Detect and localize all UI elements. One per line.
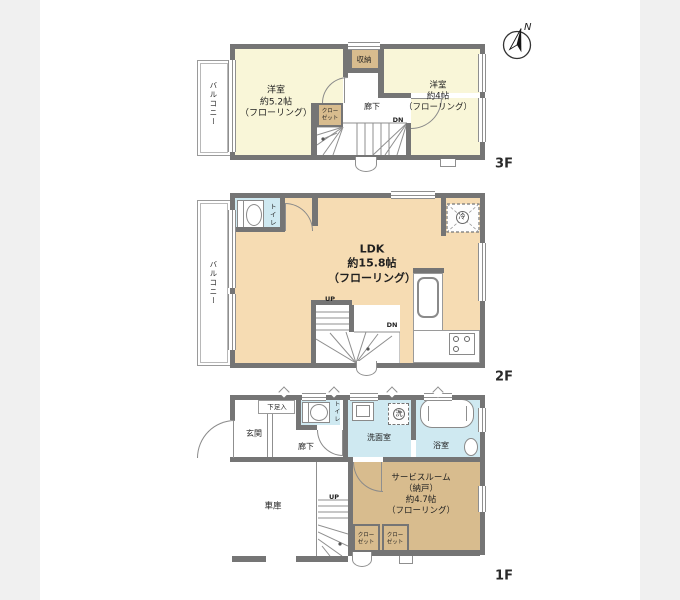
label-closet1-1f: クロー ゼット [358, 532, 375, 545]
toilet-tank-line-1f [308, 402, 309, 423]
label-shoe-cabinet-1f: 下足入 [267, 403, 287, 411]
floor-label-1f: 1F [495, 569, 513, 586]
room-label-washroom-1f: 洗面室 [367, 433, 391, 443]
label-closet2-1f: クロー ゼット [387, 532, 404, 545]
window-top-toilet-1f [302, 393, 326, 401]
floor-plan-1f: 玄関 下足入 トイレ 洗面室 洗 浴室 廊下 車庫 UP サービスルーム （納戸… [0, 0, 680, 600]
wash-basin-inner-1f [356, 405, 370, 417]
floorplan-canvas: N [0, 0, 680, 600]
washer-label-1f: 洗 [396, 409, 403, 418]
window-service-1f [478, 486, 486, 512]
room-label-garage-1f: 車庫 [264, 501, 281, 512]
vent-marker-1f [399, 556, 413, 564]
window-top-washroom-1f [350, 393, 378, 401]
room-label-service-1f: サービスルーム （納戸） 約4.7帖 （フローリング） [387, 473, 455, 517]
entrance-step-line [267, 414, 268, 457]
toilet-bowl-1f [310, 404, 328, 421]
wall-segment [296, 556, 348, 562]
door-leaf [342, 430, 343, 456]
wall-segment [343, 395, 348, 462]
door-leaf [381, 462, 382, 492]
wall-segment [411, 395, 416, 440]
stair-rail-line-1f [316, 462, 317, 556]
room-label-hallway-1f: 廊下 [298, 442, 314, 452]
room-label-entrance-1f: 玄関 [246, 429, 262, 439]
wall-segment [232, 556, 266, 562]
bathtub-line [466, 406, 467, 421]
wall-segment [230, 395, 235, 420]
door-arc-entrance-1f [197, 420, 235, 458]
bath-sink-1f [464, 438, 478, 456]
window-bath-1f [478, 408, 486, 432]
stair-cut-mark-1f [352, 552, 372, 567]
room-label-bathroom-1f: 浴室 [433, 441, 449, 451]
stairs-1f [318, 462, 348, 556]
wall-segment [235, 457, 353, 462]
wall-segment [296, 425, 317, 430]
stairs-up-label-1f: UP [329, 493, 339, 501]
bathtub-line [428, 406, 429, 421]
room-label-toilet-1f: トイレ [332, 401, 340, 424]
entrance-step-line [272, 414, 273, 457]
wall-segment [383, 457, 480, 462]
